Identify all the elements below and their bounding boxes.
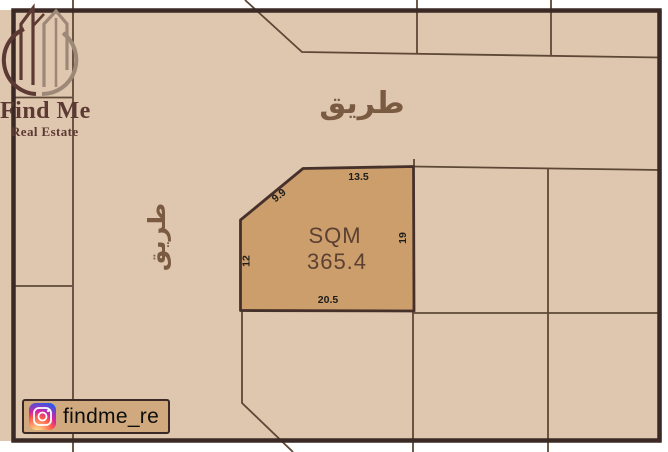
dim-left: 12 — [241, 255, 253, 267]
instagram-badge[interactable]: findme_re — [22, 399, 170, 434]
listing-image: طريق طريق SQM 365.4 13.5 9.9 19 12 20.5 … — [0, 0, 668, 452]
plot-area-label: SQM — [308, 223, 361, 248]
dim-top: 13.5 — [348, 171, 369, 183]
instagram-icon — [29, 403, 56, 430]
dim-bottom: 20.5 — [318, 294, 339, 306]
instagram-handle: findme_re — [63, 405, 159, 429]
dim-right: 19 — [397, 232, 409, 244]
plot-map: طريق طريق SQM 365.4 13.5 9.9 19 12 20.5 — [0, 0, 668, 452]
road-label-top: طريق — [319, 86, 404, 121]
plot-area-value: 365.4 — [307, 249, 367, 274]
road-label-left: طريق — [143, 203, 171, 271]
